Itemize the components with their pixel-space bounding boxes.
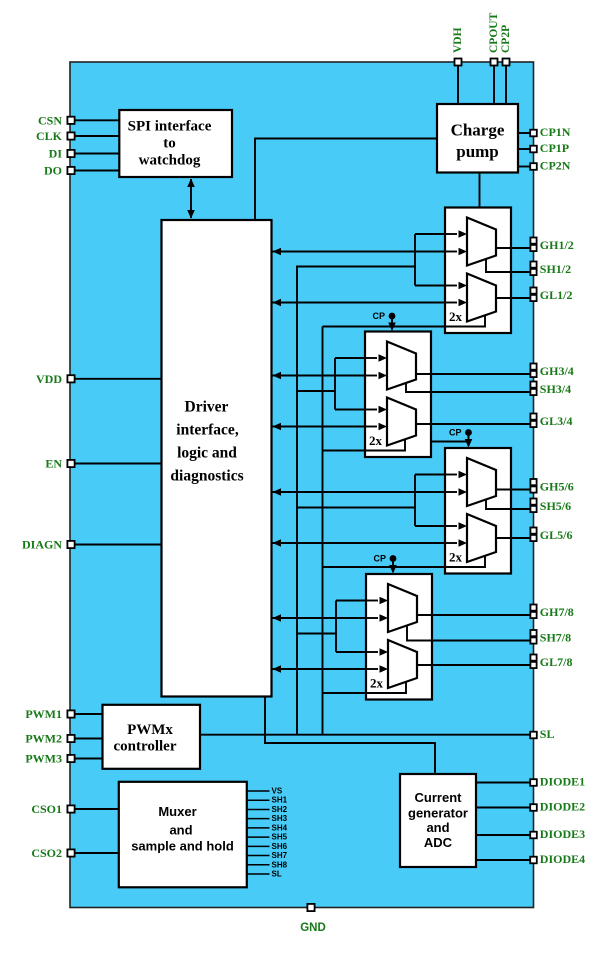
svg-text:CSN: CSN xyxy=(38,113,62,127)
svg-text:GH5/6: GH5/6 xyxy=(540,480,574,494)
svg-text:PWM3: PWM3 xyxy=(25,752,62,766)
svg-text:VDD: VDD xyxy=(36,372,62,386)
svg-text:SPI interface: SPI interface xyxy=(128,119,212,135)
svg-text:CP1N: CP1N xyxy=(540,125,571,139)
svg-text:CPOUT: CPOUT xyxy=(488,12,500,53)
svg-text:and: and xyxy=(426,820,449,835)
svg-text:SL: SL xyxy=(540,727,555,741)
svg-text:watchdog: watchdog xyxy=(139,153,201,169)
svg-text:GH7/8: GH7/8 xyxy=(540,605,574,619)
svg-text:DIODE1: DIODE1 xyxy=(540,774,585,788)
svg-text:SH5/6: SH5/6 xyxy=(540,499,571,513)
svg-text:DIAGN: DIAGN xyxy=(22,538,62,552)
svg-text:2x: 2x xyxy=(370,676,384,691)
svg-text:Driver: Driver xyxy=(185,399,229,416)
svg-text:logic and: logic and xyxy=(177,445,237,462)
svg-text:PWM2: PWM2 xyxy=(25,732,62,746)
svg-text:interface,: interface, xyxy=(176,422,239,439)
svg-text:CSO1: CSO1 xyxy=(31,802,62,816)
svg-text:CP2N: CP2N xyxy=(540,158,571,172)
svg-text:SH4: SH4 xyxy=(272,823,288,832)
svg-text:SH2: SH2 xyxy=(272,805,288,814)
svg-text:SH1: SH1 xyxy=(272,796,288,805)
svg-text:Muxer: Muxer xyxy=(158,804,196,819)
svg-text:sample and hold: sample and hold xyxy=(131,838,234,853)
svg-text:DIODE4: DIODE4 xyxy=(540,852,585,866)
svg-text:VS: VS xyxy=(272,787,283,796)
svg-text:PWM1: PWM1 xyxy=(25,707,62,721)
svg-text:GH3/4: GH3/4 xyxy=(540,364,574,378)
svg-text:CP1P: CP1P xyxy=(540,141,569,155)
svg-text:Current: Current xyxy=(415,790,463,805)
svg-text:CP: CP xyxy=(372,311,385,321)
svg-text:and: and xyxy=(169,822,192,837)
svg-text:controller: controller xyxy=(113,739,176,755)
svg-text:SH3/4: SH3/4 xyxy=(540,382,571,396)
svg-text:CSO2: CSO2 xyxy=(31,846,62,860)
svg-text:ADC: ADC xyxy=(424,835,453,850)
svg-text:GL5/6: GL5/6 xyxy=(540,528,573,542)
svg-text:DO: DO xyxy=(44,164,62,178)
svg-text:2x: 2x xyxy=(449,309,463,324)
svg-text:EN: EN xyxy=(45,457,62,471)
svg-text:VDH: VDH xyxy=(452,27,464,53)
svg-text:CP: CP xyxy=(373,554,386,564)
svg-text:GL3/4: GL3/4 xyxy=(540,414,573,428)
svg-text:diagnostics: diagnostics xyxy=(170,468,243,485)
svg-text:to: to xyxy=(163,136,176,152)
svg-text:CP: CP xyxy=(449,428,462,438)
svg-text:SH5: SH5 xyxy=(272,833,288,842)
svg-text:CLK: CLK xyxy=(36,129,63,143)
svg-text:DI: DI xyxy=(49,147,63,161)
svg-text:2x: 2x xyxy=(369,433,383,448)
svg-text:SL: SL xyxy=(272,869,282,878)
svg-text:GL7/8: GL7/8 xyxy=(540,655,573,669)
svg-text:DIODE2: DIODE2 xyxy=(540,799,585,813)
svg-text:GH1/2: GH1/2 xyxy=(540,238,574,252)
svg-text:SH7/8: SH7/8 xyxy=(540,631,571,645)
svg-text:GND: GND xyxy=(300,922,326,934)
svg-text:SH8: SH8 xyxy=(272,860,288,869)
svg-text:SH6: SH6 xyxy=(272,842,288,851)
svg-text:SH3: SH3 xyxy=(272,814,288,823)
svg-text:pump: pump xyxy=(456,142,499,161)
svg-text:PWMx: PWMx xyxy=(127,722,173,738)
svg-text:generator: generator xyxy=(408,806,468,821)
svg-text:SH1/2: SH1/2 xyxy=(540,262,571,276)
svg-text:SH7: SH7 xyxy=(272,851,288,860)
svg-text:Charge: Charge xyxy=(451,121,505,140)
svg-text:CP2P: CP2P xyxy=(500,25,512,53)
svg-text:DIODE3: DIODE3 xyxy=(540,827,585,841)
svg-text:GL1/2: GL1/2 xyxy=(540,288,573,302)
svg-text:2x: 2x xyxy=(449,550,463,565)
